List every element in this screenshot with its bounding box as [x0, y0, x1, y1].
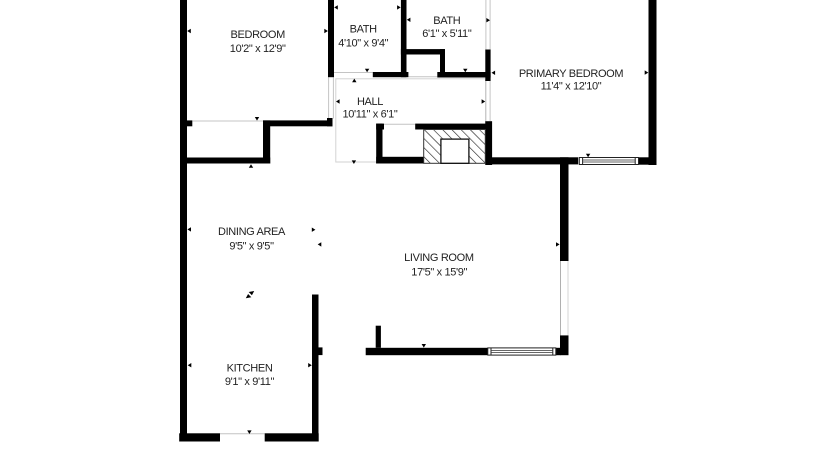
- svg-text:DINING AREA: DINING AREA: [218, 226, 286, 238]
- svg-text:BATH: BATH: [433, 15, 461, 27]
- svg-text:6'1" x 5'11": 6'1" x 5'11": [422, 28, 472, 40]
- svg-text:KITCHEN: KITCHEN: [227, 363, 273, 375]
- svg-text:PRIMARY BEDROOM: PRIMARY BEDROOM: [519, 68, 624, 80]
- svg-text:LIVING ROOM: LIVING ROOM: [404, 252, 474, 264]
- svg-text:BATH: BATH: [350, 24, 378, 36]
- svg-text:9'5" x 9'5": 9'5" x 9'5": [229, 240, 274, 252]
- svg-text:10'11" x 6'1": 10'11" x 6'1": [343, 108, 398, 120]
- svg-text:11'4" x 12'10": 11'4" x 12'10": [541, 80, 602, 92]
- svg-text:BEDROOM: BEDROOM: [231, 29, 286, 41]
- svg-text:HALL: HALL: [357, 96, 383, 108]
- svg-text:17'5" x 15'9": 17'5" x 15'9": [411, 267, 467, 279]
- svg-text:10'2" x 12'9": 10'2" x 12'9": [230, 43, 286, 55]
- svg-text:4'10" x 9'4": 4'10" x 9'4": [338, 37, 388, 49]
- svg-text:9'1" x 9'11": 9'1" x 9'11": [225, 376, 275, 388]
